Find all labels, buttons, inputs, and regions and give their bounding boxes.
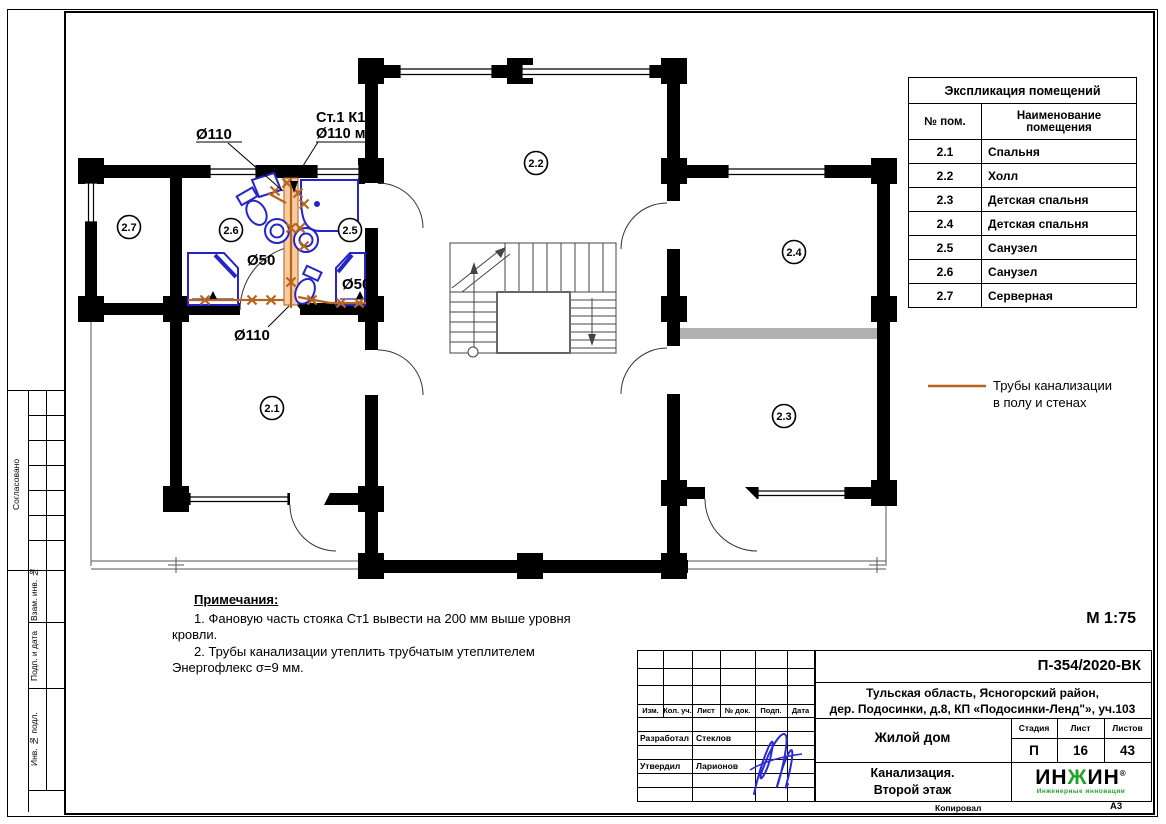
sheets-label: Листов <box>1104 723 1151 733</box>
room-explication-table: Экспликация помещений № пом. Наименовани… <box>908 77 1137 308</box>
table-row: 2.1Спальня <box>909 140 1137 164</box>
col-list: Лист <box>692 706 720 715</box>
stage-value: П <box>1011 743 1057 758</box>
col-kol-uch: Кол. уч. <box>663 706 692 715</box>
col-izm: Изм. <box>638 706 663 715</box>
svg-text:2.5: 2.5 <box>342 225 357 237</box>
drawing-title-line1: Канализация. <box>814 765 1011 782</box>
scale-label: М 1:75 <box>1046 610 1136 628</box>
title-block: Изм. Кол. уч. Лист № док. Подп. Дата Раз… <box>637 650 1152 802</box>
col-header-name: Наименование помещения <box>982 104 1137 140</box>
stage-label: Стадия <box>1011 723 1057 733</box>
svg-text:2.7: 2.7 <box>121 222 136 234</box>
address-line-2: дер. Подосинки, д.8, КП «Подосинки-Ленд"… <box>816 701 1149 717</box>
pipe-label-d50-left: Ø50 <box>247 252 275 269</box>
room-tag-2-5: 2.5 <box>339 219 362 242</box>
sheet-label: Лист <box>1057 723 1104 733</box>
pipe-label-d110-bottom: Ø110 <box>234 327 270 344</box>
room-tag-2-7: 2.7 <box>118 216 141 239</box>
legend-line1: Трубы канализации <box>993 377 1112 394</box>
signature <box>742 710 808 808</box>
table-row: 2.7Серверная <box>909 284 1137 308</box>
room-tag-2-2: 2.2 <box>525 152 548 175</box>
note-item-1: 1. Фановую часть стояка Ст1 вывести на 2… <box>172 611 574 644</box>
room-tag-2-1: 2.1 <box>261 397 284 420</box>
riser-label-line1: Ст.1 К1 <box>316 110 365 126</box>
copied-label: Копировал <box>935 803 981 813</box>
balcony-outlines <box>91 312 886 573</box>
object-name: Жилой дом <box>814 718 1011 762</box>
room-tag-2-4: 2.4 <box>783 241 806 264</box>
role-approved: Утвердил <box>638 761 694 771</box>
drawing-title: Канализация. Второй этаж <box>814 762 1011 804</box>
logo-tagline: Инженерные инновации <box>1011 788 1151 795</box>
address-line-1: Тульская область, Ясногорский район, <box>816 685 1149 701</box>
sheets-value: 43 <box>1104 743 1151 758</box>
drawing-title-line2: Второй этаж <box>814 782 1011 799</box>
notes-title: Примечания: <box>194 592 574 609</box>
registered-mark: ® <box>1120 769 1127 778</box>
legend-line2: в полу и стенах <box>993 394 1112 411</box>
sheet-value: 16 <box>1057 743 1104 758</box>
col-header-number: № пом. <box>909 104 982 140</box>
riser-label-line2: Ø110 мм <box>316 126 376 142</box>
svg-text:2.6: 2.6 <box>223 225 238 237</box>
staircase <box>450 243 616 357</box>
pipe-label-d110-top: Ø110 <box>196 126 232 143</box>
svg-text:2.3: 2.3 <box>776 411 791 423</box>
table-title: Экспликация помещений <box>909 78 1137 104</box>
drawing-sheet: { "page": {"scale_label": "М 1:75", "cop… <box>0 0 1166 824</box>
notes-block: Примечания: 1. Фановую часть стояка Ст1 … <box>172 592 574 677</box>
legend: Трубы канализации в полу и стенах <box>993 377 1112 411</box>
table-row: 2.2Холл <box>909 164 1137 188</box>
svg-text:2.2: 2.2 <box>528 158 543 170</box>
inzhin-logo: ИНЖИН® Инженерные инновации <box>1011 764 1151 801</box>
pipe-label-d50-right: Ø50 <box>342 276 370 293</box>
table-row: 2.3Детская спальня <box>909 188 1137 212</box>
bath-drain <box>314 201 320 207</box>
table-row: 2.6Санузел <box>909 260 1137 284</box>
note-item-2: 2. Трубы канализации утеплить трубчатым … <box>172 644 574 677</box>
room-tag-2-6: 2.6 <box>220 219 243 242</box>
table-row: 2.5Санузел <box>909 236 1137 260</box>
table-row: 2.4Детская спальня <box>909 212 1137 236</box>
role-developed: Разработал <box>638 733 694 743</box>
svg-text:2.4: 2.4 <box>786 247 802 259</box>
project-address: Тульская область, Ясногорский район, дер… <box>816 682 1149 721</box>
svg-text:2.1: 2.1 <box>264 403 279 415</box>
gray-partition <box>680 328 877 339</box>
room-tag-2-3: 2.3 <box>773 405 796 428</box>
format-label: А3 <box>1110 801 1122 812</box>
